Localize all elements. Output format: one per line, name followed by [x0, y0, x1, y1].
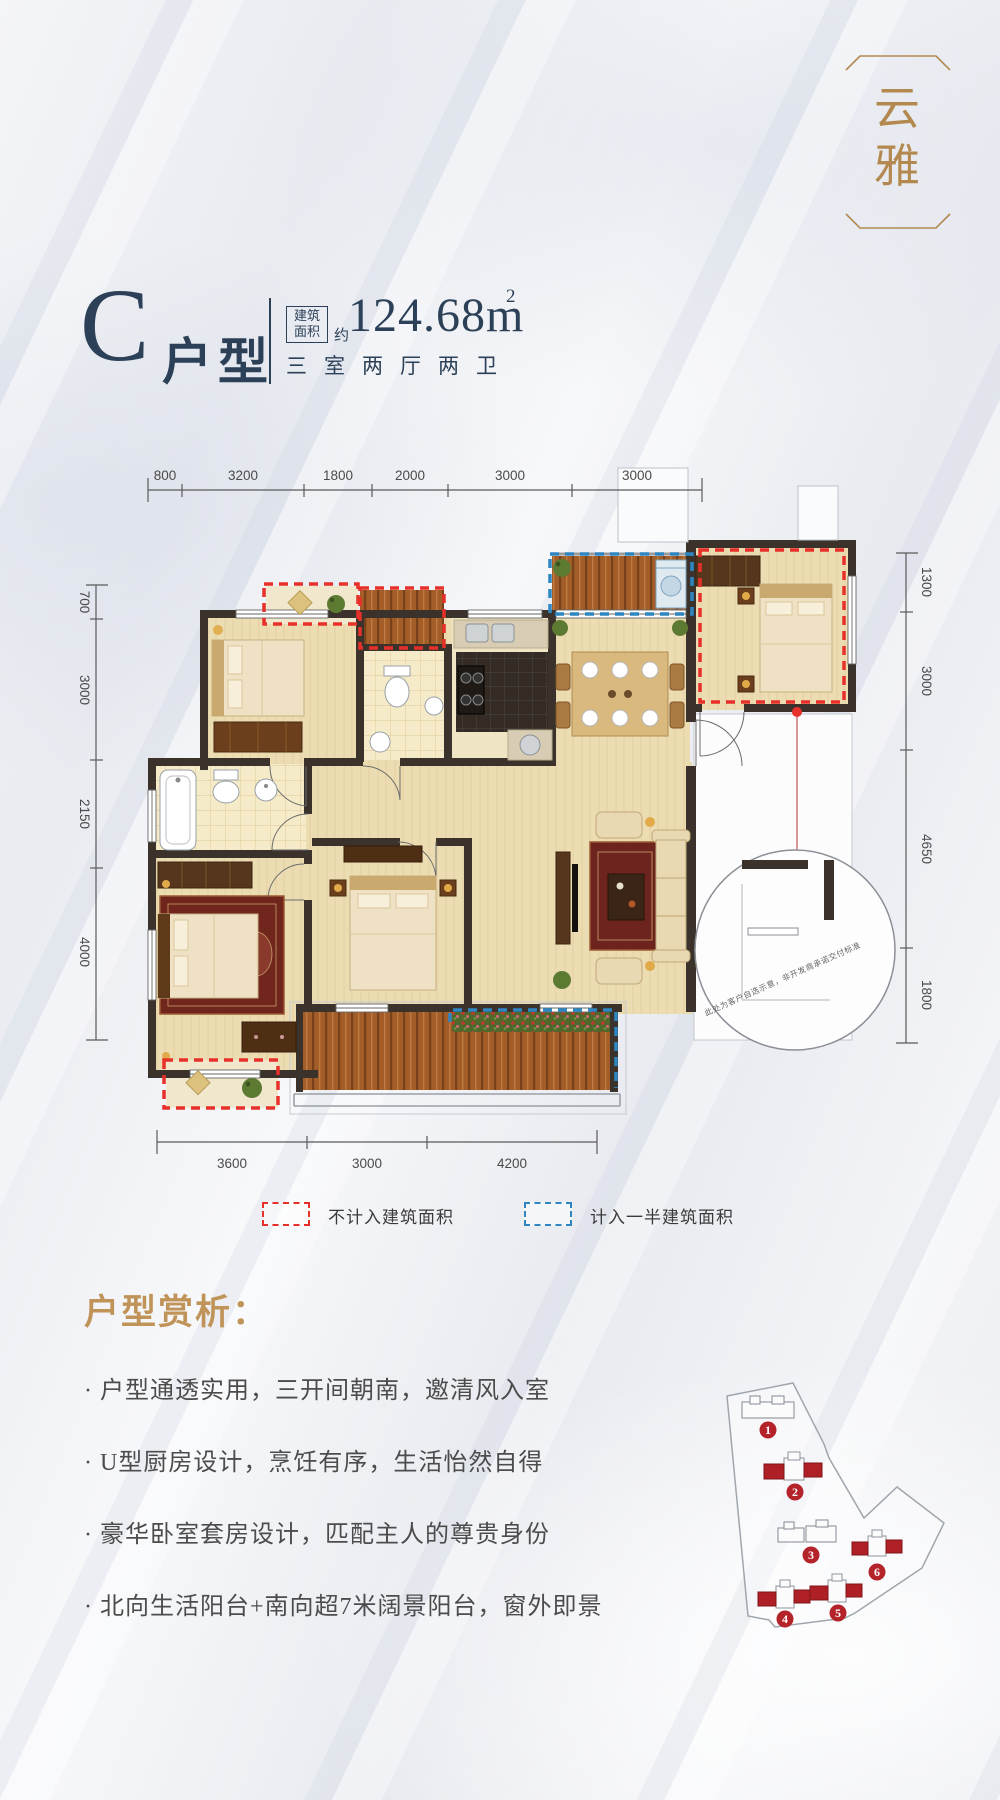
analysis-bullet: · 北向生活阳台+南向超7米阔景阳台，窗外即景	[84, 1586, 603, 1621]
site-marker-label: 4	[782, 1612, 788, 1626]
bedroom2-furniture	[212, 625, 304, 752]
dim-label: 4200	[497, 1156, 527, 1171]
dim-label: 3000	[77, 675, 92, 705]
dim-label: 3000	[622, 468, 652, 483]
analysis-section: 户型赏析： · 户型通透实用，三开间朝南，邀清风入室 · U型厨房设计，烹饪有序…	[84, 1284, 704, 1335]
dim-label: 3600	[217, 1156, 247, 1171]
legend-red-swatch	[262, 1202, 310, 1226]
dim-label: 2150	[77, 799, 92, 829]
dim-label: 3000	[919, 666, 934, 696]
analysis-bullet: · U型厨房设计，烹饪有序，生活怡然自得	[84, 1442, 543, 1477]
legend-red-label: 不计入建筑面积	[328, 1203, 454, 1228]
legend-blue-label: 计入一半建筑面积	[590, 1203, 734, 1228]
dim-label: 2000	[395, 468, 425, 483]
dim-label: 1800	[323, 468, 353, 483]
dim-label: 4000	[77, 937, 92, 967]
dim-label: 3200	[228, 468, 258, 483]
site-marker-label: 1	[765, 1423, 771, 1437]
dim-label: 4650	[919, 834, 934, 864]
site-marker-label: 6	[874, 1565, 880, 1579]
site-marker-label: 3	[808, 1548, 814, 1562]
site-marker-label: 2	[792, 1485, 798, 1499]
site-marker-label: 5	[835, 1606, 841, 1620]
analysis-bullet: · 户型通透实用，三开间朝南，邀清风入室	[84, 1370, 550, 1405]
analysis-bullet: · 豪华卧室套房设计，匹配主人的尊贵身份	[84, 1514, 550, 1549]
floorplan-poster: 云 雅 C 户型 建筑面积 约 124.68m 2 三室两厅两卫	[0, 0, 1000, 1800]
dim-label: 800	[154, 468, 177, 483]
dim-label: 3000	[495, 468, 525, 483]
dim-label: 1800	[919, 980, 934, 1010]
dim-label: 3000	[352, 1156, 382, 1171]
entry-detail-circle: 此处为客户自选示意，非开发商承诺交付标准	[695, 850, 895, 1050]
site-plan: 1 2 3 4 5 6	[727, 1383, 944, 1628]
legend: 不计入建筑面积 计入一半建筑面积	[0, 1200, 1000, 1230]
dim-label: 700	[77, 591, 92, 614]
analysis-title: 户型赏析：	[84, 1284, 704, 1335]
leader-dot	[792, 707, 802, 717]
legend-blue-swatch	[524, 1202, 572, 1226]
dim-label: 1300	[919, 567, 934, 597]
